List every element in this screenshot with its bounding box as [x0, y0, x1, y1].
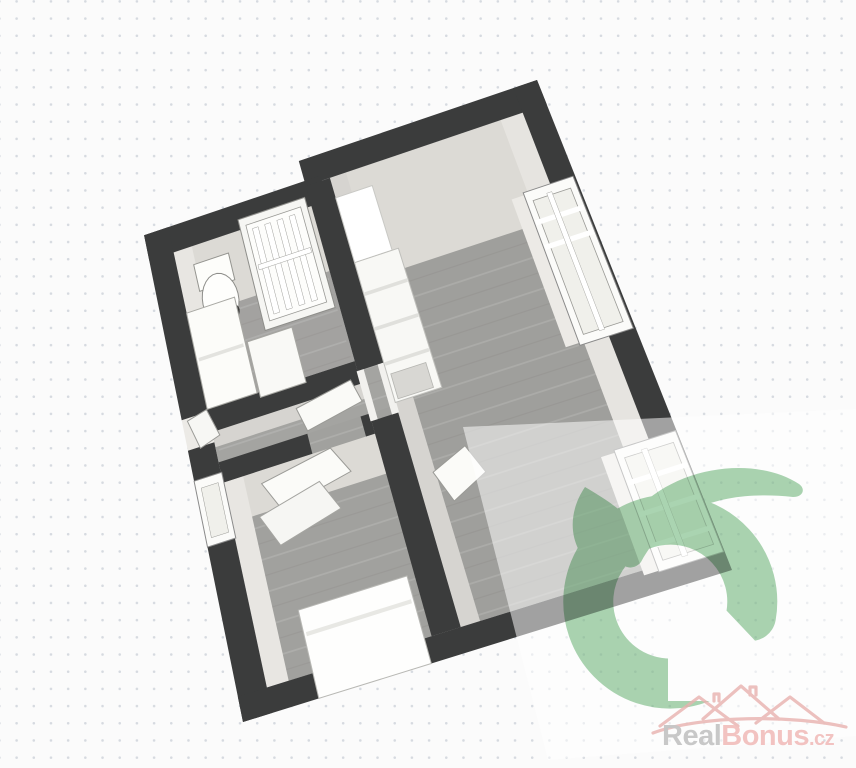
wall-top-main	[299, 80, 547, 186]
main-room-floor-plank	[426, 428, 642, 497]
main-room-floor-plank	[417, 397, 630, 465]
wall-left-lower	[188, 442, 272, 722]
window-upper-pane	[533, 188, 623, 334]
bedroom-floor-plank	[227, 431, 401, 487]
window-upper-bar-1	[535, 205, 585, 226]
main-room-floor-plank	[430, 443, 647, 512]
shower-frame	[238, 197, 335, 330]
bathroom-floor-plank	[182, 232, 316, 277]
bedroom-floor-plank	[257, 571, 441, 629]
bathroom-floor-plank	[178, 217, 312, 262]
door-frame-hall-left	[357, 369, 378, 421]
wall-left-upper	[144, 227, 208, 420]
watermark-panel-shape	[463, 409, 856, 760]
logo-house-shape	[654, 591, 762, 701]
main-room-floor-plank	[371, 245, 570, 311]
entrance-threshold	[182, 412, 215, 451]
main-room-floor-plank	[412, 382, 624, 450]
kitchen-counter-seam-3	[385, 348, 430, 366]
main-room-floor-plank	[439, 473, 659, 542]
brand-pink-part: Bonus	[721, 720, 809, 752]
shower-rail	[258, 247, 312, 270]
bedroom-floor-plank	[251, 540, 433, 597]
bathroom-floor-plank	[209, 356, 351, 402]
kitchen-appliance	[391, 363, 434, 399]
main-room-floor-plank	[444, 489, 665, 559]
bathroom-floor-plank	[205, 341, 346, 387]
bedroom-floor-plank	[223, 416, 396, 472]
main-room-floor-plank	[376, 260, 577, 326]
main-room-floor-plank	[367, 230, 565, 295]
bedroom-floor-plank	[230, 447, 405, 503]
bedroom-wall-face-top	[223, 434, 386, 523]
toilet-bowl	[202, 273, 239, 325]
wall-divider-lower	[372, 413, 461, 637]
logo-leaf-icon	[573, 487, 622, 572]
vanity-seam	[199, 343, 244, 361]
bedroom-floor-plank	[244, 509, 423, 566]
main-room-floor-plank	[358, 199, 553, 264]
floor-plan-rendering	[0, 0, 856, 768]
main-room-floor-plank	[362, 215, 559, 280]
bedroom-floor-plank	[234, 462, 410, 518]
window-lower-bar-3	[650, 525, 713, 549]
bathroom-floor-plank	[192, 279, 329, 325]
brand-watermark: RealBonus.cz	[662, 720, 834, 753]
main-room-floor-plank	[399, 336, 606, 403]
desk-panel-2	[260, 481, 342, 545]
main-room-floor	[330, 113, 693, 627]
main-wall-face-divider	[330, 172, 480, 627]
vanity-cabinet	[187, 297, 258, 409]
main-room-floor-plank	[389, 306, 594, 373]
bedroom-floor-plank	[261, 586, 446, 644]
bathroom-wall-face-top	[174, 206, 330, 318]
window-lower-bar-2	[639, 493, 701, 517]
shower-bar-2	[265, 223, 293, 310]
bathroom-floor-plank	[198, 310, 337, 356]
hallway-floor-plank	[212, 363, 381, 418]
window-lower-bar-1	[627, 462, 688, 486]
window-lower-pane	[625, 442, 714, 560]
desk-panel	[262, 448, 351, 510]
realbonus-logo-icon	[0, 0, 856, 768]
wall-bathroom-bottom	[207, 361, 361, 432]
wall-right	[513, 80, 722, 555]
main-wall-face-right	[501, 113, 694, 563]
logo-ring-icon	[588, 520, 752, 684]
main-room-floor-plank	[453, 519, 677, 589]
window-lower-bar-vertical	[641, 448, 688, 557]
wall-top-bathroom	[144, 176, 328, 261]
bed-seam	[306, 599, 412, 636]
kitchen-counter-seam-1	[364, 278, 408, 296]
shower-bar-1	[252, 227, 279, 314]
main-room-floor-plank	[344, 154, 535, 218]
hallway-wall-face-top	[212, 384, 365, 448]
kitchen-counter-seam-2	[374, 313, 419, 331]
bathroom-floor-plank	[195, 294, 333, 340]
page-canvas: RealBonus.cz	[0, 0, 856, 768]
bedroom-floor-plank	[264, 602, 450, 660]
wall-bedroom-top-right	[361, 414, 376, 437]
main-room-floor-plank	[408, 367, 618, 435]
bedroom-floor-plank	[237, 478, 414, 535]
window-upper-bar-2	[544, 229, 594, 250]
bedroom-window-pane	[201, 483, 229, 538]
main-door-leaf	[433, 446, 486, 501]
washer	[247, 327, 306, 397]
bathroom-wall-face-left	[174, 246, 227, 409]
main-room-floor-plank	[462, 550, 688, 621]
door-frame-hall-right	[378, 362, 400, 414]
bedroom-floor-plank	[254, 555, 437, 613]
main-room-floor-plank	[349, 169, 542, 233]
bedroom-floor-plank	[240, 493, 418, 550]
main-room-floor-plank	[394, 321, 600, 388]
main-room-floor-plank	[457, 534, 682, 604]
watermark-panel	[0, 0, 856, 768]
main-room-floor-plank	[435, 458, 653, 527]
bathroom-floor-plank	[188, 263, 324, 308]
toilet-tank	[194, 253, 235, 291]
shower-bar-3	[277, 219, 305, 306]
kitchen-cabinet-tall	[336, 186, 392, 263]
brand-suffix: .cz	[809, 728, 834, 750]
bedroom-door-leaf	[296, 380, 362, 431]
main-room-floor-plank	[380, 276, 582, 342]
window-upper-frame	[523, 176, 633, 345]
main-room-floor-plank	[448, 504, 670, 574]
main-room-floor-plank	[353, 184, 547, 249]
shower-bar-4	[289, 214, 318, 301]
window-sill-lower	[601, 451, 664, 575]
shower-glass	[246, 207, 327, 321]
bedroom-floor	[219, 405, 461, 688]
window-lower-frame	[614, 431, 724, 572]
entrance-door-leaf	[187, 410, 219, 449]
toilet-seat	[213, 303, 240, 325]
bed	[298, 576, 431, 699]
bathroom-floor	[174, 206, 355, 409]
main-room-floor-plank	[385, 291, 588, 357]
bedroom-wall-face-left	[223, 476, 289, 687]
logo-wing-icon	[614, 468, 803, 568]
kitchen-counter	[355, 248, 442, 402]
wall-divider-upper	[306, 178, 384, 371]
main-room-floor-plank	[340, 139, 530, 203]
realbonus-rooftops-icon	[0, 0, 856, 768]
bedroom-floor-plank	[267, 617, 454, 676]
brand-gray-part: Real	[662, 720, 721, 752]
wall-bottom	[238, 546, 732, 723]
window-sill-upper	[512, 194, 584, 347]
main-room-floor-plank	[335, 123, 524, 187]
bedroom-floor-plank	[247, 524, 428, 581]
window-upper-bar-vertical	[547, 192, 605, 331]
bedroom-window-frame	[194, 472, 236, 547]
bathroom-floor-plank	[202, 325, 342, 371]
hallway-floor-plank	[215, 379, 385, 434]
hallway-floor-plank	[219, 394, 390, 450]
bathroom-floor-plank	[185, 248, 320, 293]
wall-bedroom-top-left	[219, 434, 313, 483]
main-room-floor-plank	[421, 413, 635, 481]
main-room-floor-plank	[403, 352, 612, 419]
hallway-floor	[207, 353, 398, 470]
main-wall-face-top	[330, 113, 563, 283]
logo-house-icon	[0, 0, 856, 768]
